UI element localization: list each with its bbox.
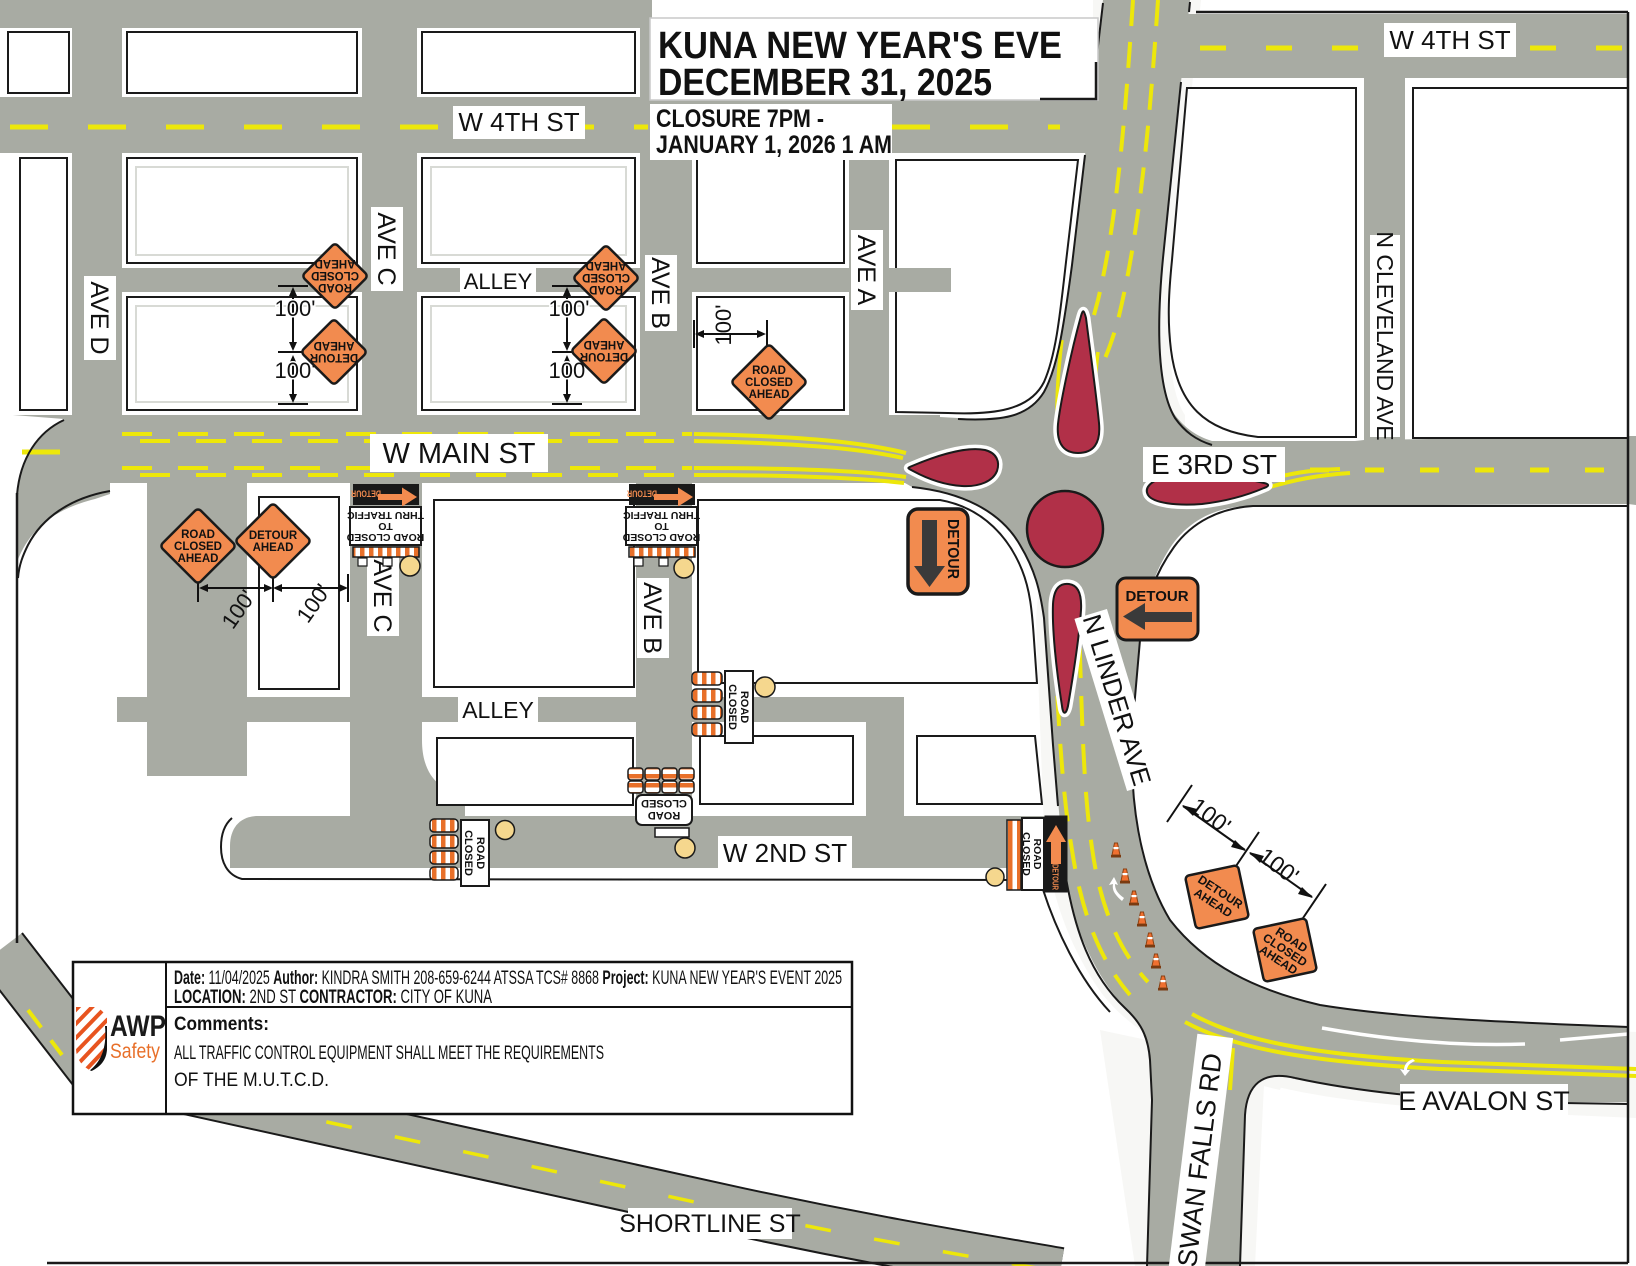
svg-text:ALLEY: ALLEY xyxy=(464,269,533,294)
svg-text:AVE D: AVE D xyxy=(85,281,113,354)
svg-text:DETOUR: DETOUR xyxy=(351,488,381,499)
svg-text:ROAD: ROAD xyxy=(181,529,215,541)
svg-text:CLOSED: CLOSED xyxy=(1020,832,1032,876)
svg-text:100': 100' xyxy=(275,296,316,321)
svg-text:100': 100' xyxy=(711,305,736,346)
svg-text:CLOSED: CLOSED xyxy=(582,271,630,283)
svg-text:DETOUR: DETOUR xyxy=(1051,864,1061,890)
svg-text:AVE C: AVE C xyxy=(372,212,400,285)
svg-text:CLOSED: CLOSED xyxy=(641,797,687,809)
svg-text:AHEAD: AHEAD xyxy=(749,389,790,401)
svg-text:LOCATION: 2ND ST CONTRACTOR: C: LOCATION: 2ND ST CONTRACTOR: CITY OF KUN… xyxy=(174,986,492,1008)
svg-text:AVE B: AVE B xyxy=(646,257,674,329)
svg-text:W 4TH ST: W 4TH ST xyxy=(458,107,579,137)
svg-text:DETOUR: DETOUR xyxy=(627,488,657,499)
svg-text:AVE A: AVE A xyxy=(852,235,880,306)
svg-text:SHORTLINE ST: SHORTLINE ST xyxy=(619,1210,801,1238)
svg-text:AHEAD: AHEAD xyxy=(253,542,294,554)
svg-text:ROAD: ROAD xyxy=(752,365,786,377)
svg-text:100': 100' xyxy=(549,296,590,321)
svg-text:THRU TRAFFIC: THRU TRAFFIC xyxy=(623,509,700,521)
svg-text:W 4TH ST: W 4TH ST xyxy=(1389,25,1510,55)
svg-text:DETOUR: DETOUR xyxy=(1125,588,1188,605)
svg-text:CLOSURE 7PM -: CLOSURE 7PM - xyxy=(656,105,824,133)
svg-text:AHEAD: AHEAD xyxy=(584,338,625,350)
svg-text:AHEAD: AHEAD xyxy=(586,259,627,271)
svg-text:KUNA NEW YEAR'S EVE: KUNA NEW YEAR'S EVE xyxy=(658,25,1062,67)
svg-text:AHEAD: AHEAD xyxy=(314,339,355,351)
svg-text:CLOSED: CLOSED xyxy=(745,377,793,389)
svg-text:DETOUR: DETOUR xyxy=(309,351,358,363)
svg-text:E 3RD ST: E 3RD ST xyxy=(1151,449,1277,480)
svg-text:DETOUR: DETOUR xyxy=(579,350,628,362)
svg-text:Safety: Safety xyxy=(110,1040,160,1063)
svg-text:ROAD: ROAD xyxy=(648,809,680,821)
svg-text:ROAD: ROAD xyxy=(474,837,486,869)
svg-text:CLOSED: CLOSED xyxy=(311,269,359,281)
svg-text:ALLEY: ALLEY xyxy=(462,697,534,723)
svg-text:AWP: AWP xyxy=(110,1010,166,1043)
svg-text:CLOSED: CLOSED xyxy=(726,684,738,730)
svg-text:W 2ND ST: W 2ND ST xyxy=(723,838,847,868)
svg-text:CLOSED: CLOSED xyxy=(174,541,222,553)
svg-text:ROAD: ROAD xyxy=(738,691,750,723)
svg-text:DETOUR: DETOUR xyxy=(249,530,298,542)
svg-text:W MAIN ST: W MAIN ST xyxy=(382,438,535,470)
svg-text:THRU TRAFFIC: THRU TRAFFIC xyxy=(347,509,424,521)
svg-text:Comments:: Comments: xyxy=(174,1013,269,1035)
svg-text:E AVALON ST: E AVALON ST xyxy=(1398,1086,1570,1116)
svg-text:OF THE M.U.T.C.D.: OF THE M.U.T.C.D. xyxy=(174,1069,329,1091)
svg-text:AHEAD: AHEAD xyxy=(315,257,356,269)
svg-text:DECEMBER 31, 2025: DECEMBER 31, 2025 xyxy=(658,62,992,104)
svg-text:CLOSED: CLOSED xyxy=(462,830,474,876)
svg-text:DETOUR: DETOUR xyxy=(944,519,961,579)
svg-text:ALL TRAFFIC CONTROL EQUIPMENT: ALL TRAFFIC CONTROL EQUIPMENT SHALL MEET… xyxy=(174,1042,604,1064)
svg-text:AHEAD: AHEAD xyxy=(178,553,219,565)
svg-text:AVE C: AVE C xyxy=(368,559,396,632)
svg-text:AVE B: AVE B xyxy=(638,582,666,654)
svg-text:JANUARY 1, 2026 1 AM: JANUARY 1, 2026 1 AM xyxy=(656,131,892,159)
svg-text:N CLEVELAND AVE: N CLEVELAND AVE xyxy=(1372,231,1398,440)
svg-text:ROAD: ROAD xyxy=(589,283,623,295)
svg-text:ROAD: ROAD xyxy=(318,281,352,293)
